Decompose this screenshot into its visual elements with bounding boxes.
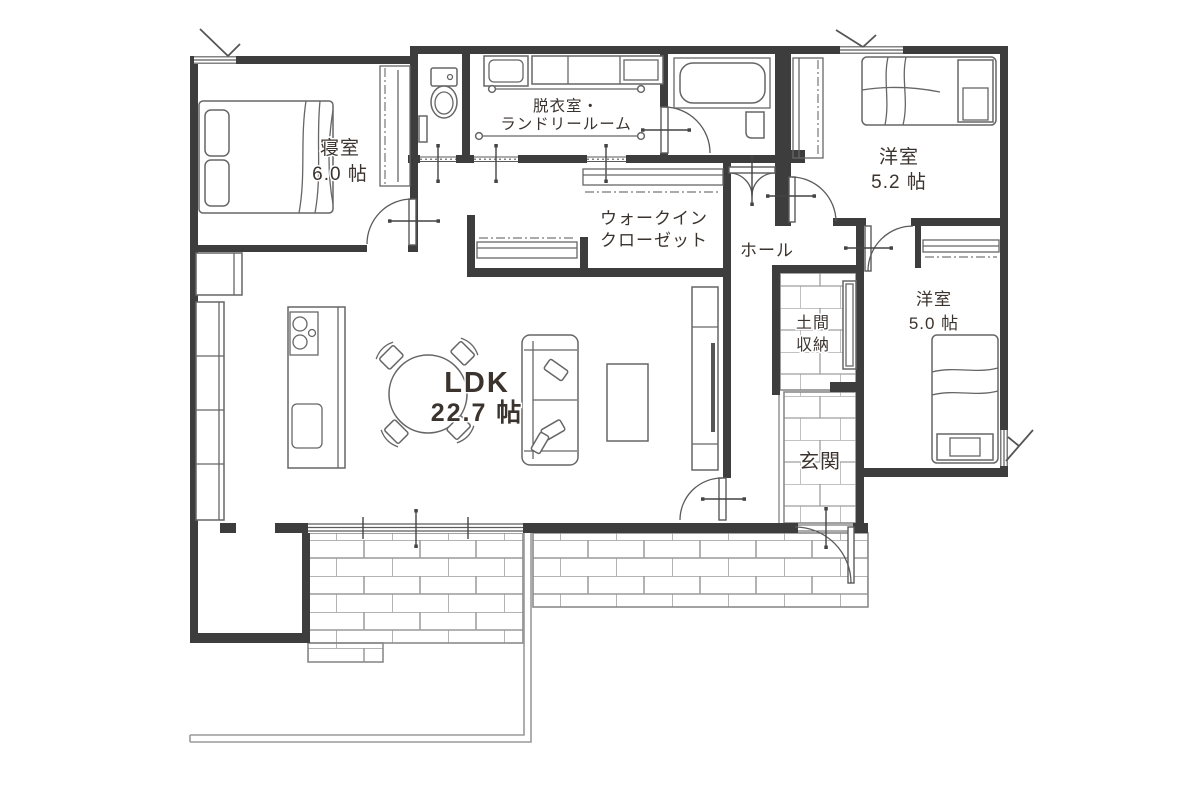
- floor-plan: 寝室 6.0 帖 脱衣室・ ランドリールーム ウォークイン クローゼット 洋室 …: [0, 0, 1200, 800]
- porch-right: [533, 533, 868, 607]
- tick-laundry-door-left: [494, 144, 498, 183]
- wic-label-line1: ウォークイン: [600, 209, 708, 228]
- bath-counter: [746, 112, 764, 138]
- vent-marker-icon: [200, 29, 228, 56]
- bathtub: [674, 58, 770, 138]
- western-5-2-label: 洋室: [879, 146, 919, 168]
- coffee-table: [607, 364, 648, 441]
- bedroom-area: 6.0 帖: [312, 163, 368, 185]
- laundry-label-line1: 脱衣室・: [533, 97, 599, 115]
- kitchen-cabinets: [196, 302, 224, 520]
- single-bed-5-0: [932, 335, 998, 463]
- doma-label-line1: 土間: [796, 314, 830, 332]
- bedroom-label: 寝室: [320, 137, 360, 159]
- bedroom-closet: [380, 66, 410, 186]
- western-5-0-area: 5.0 帖: [909, 314, 959, 333]
- vent-marker-icon: [836, 30, 863, 47]
- western-5-0-window: [1000, 430, 1033, 466]
- western-5-2-area: 5.2 帖: [871, 171, 927, 193]
- ldk-label: LDK: [444, 367, 510, 399]
- refrigerator: [196, 253, 242, 295]
- tv: [711, 343, 715, 432]
- pillow: [205, 110, 229, 156]
- kitchen-island: [288, 307, 345, 468]
- floor-plan-page: 寝室 6.0 帖 脱衣室・ ランドリールーム ウォークイン クローゼット 洋室 …: [0, 0, 1200, 800]
- toilet-shelf: [419, 116, 427, 142]
- vent-marker-icon: [1006, 430, 1033, 461]
- doma-shelf: [843, 281, 856, 369]
- pillow: [205, 160, 229, 206]
- genkan-label: 玄関: [799, 450, 841, 473]
- dining-chair: [449, 336, 480, 367]
- toilet: [419, 68, 457, 142]
- western-5-0-closet: [923, 240, 999, 257]
- terrace-step: [308, 643, 383, 662]
- western-5-2-closet: [793, 58, 823, 158]
- laundry-counter: [532, 56, 663, 84]
- tv-board: [692, 287, 718, 470]
- towel-bar: [476, 133, 645, 140]
- tick-toilet-door: [436, 144, 440, 183]
- sofa: [522, 335, 578, 465]
- terrace-left: [308, 533, 523, 643]
- western-5-2-door: [789, 177, 836, 222]
- single-bed-5-2: [862, 57, 996, 125]
- hall-label: ホール: [740, 241, 794, 260]
- doma-label-line2: 収納: [796, 336, 830, 354]
- bedroom-window: [194, 29, 240, 64]
- double-bed: [199, 101, 333, 213]
- ldk-area: 22.7 帖: [431, 399, 524, 427]
- washing-machine: [484, 56, 528, 86]
- tick-laundry-door-right: [604, 144, 608, 183]
- wic-label-line2: クローゼット: [600, 231, 708, 250]
- laundry-label-line2: ランドリールーム: [500, 116, 632, 133]
- western-5-2-window: [836, 30, 903, 54]
- western-5-0-label: 洋室: [916, 290, 952, 309]
